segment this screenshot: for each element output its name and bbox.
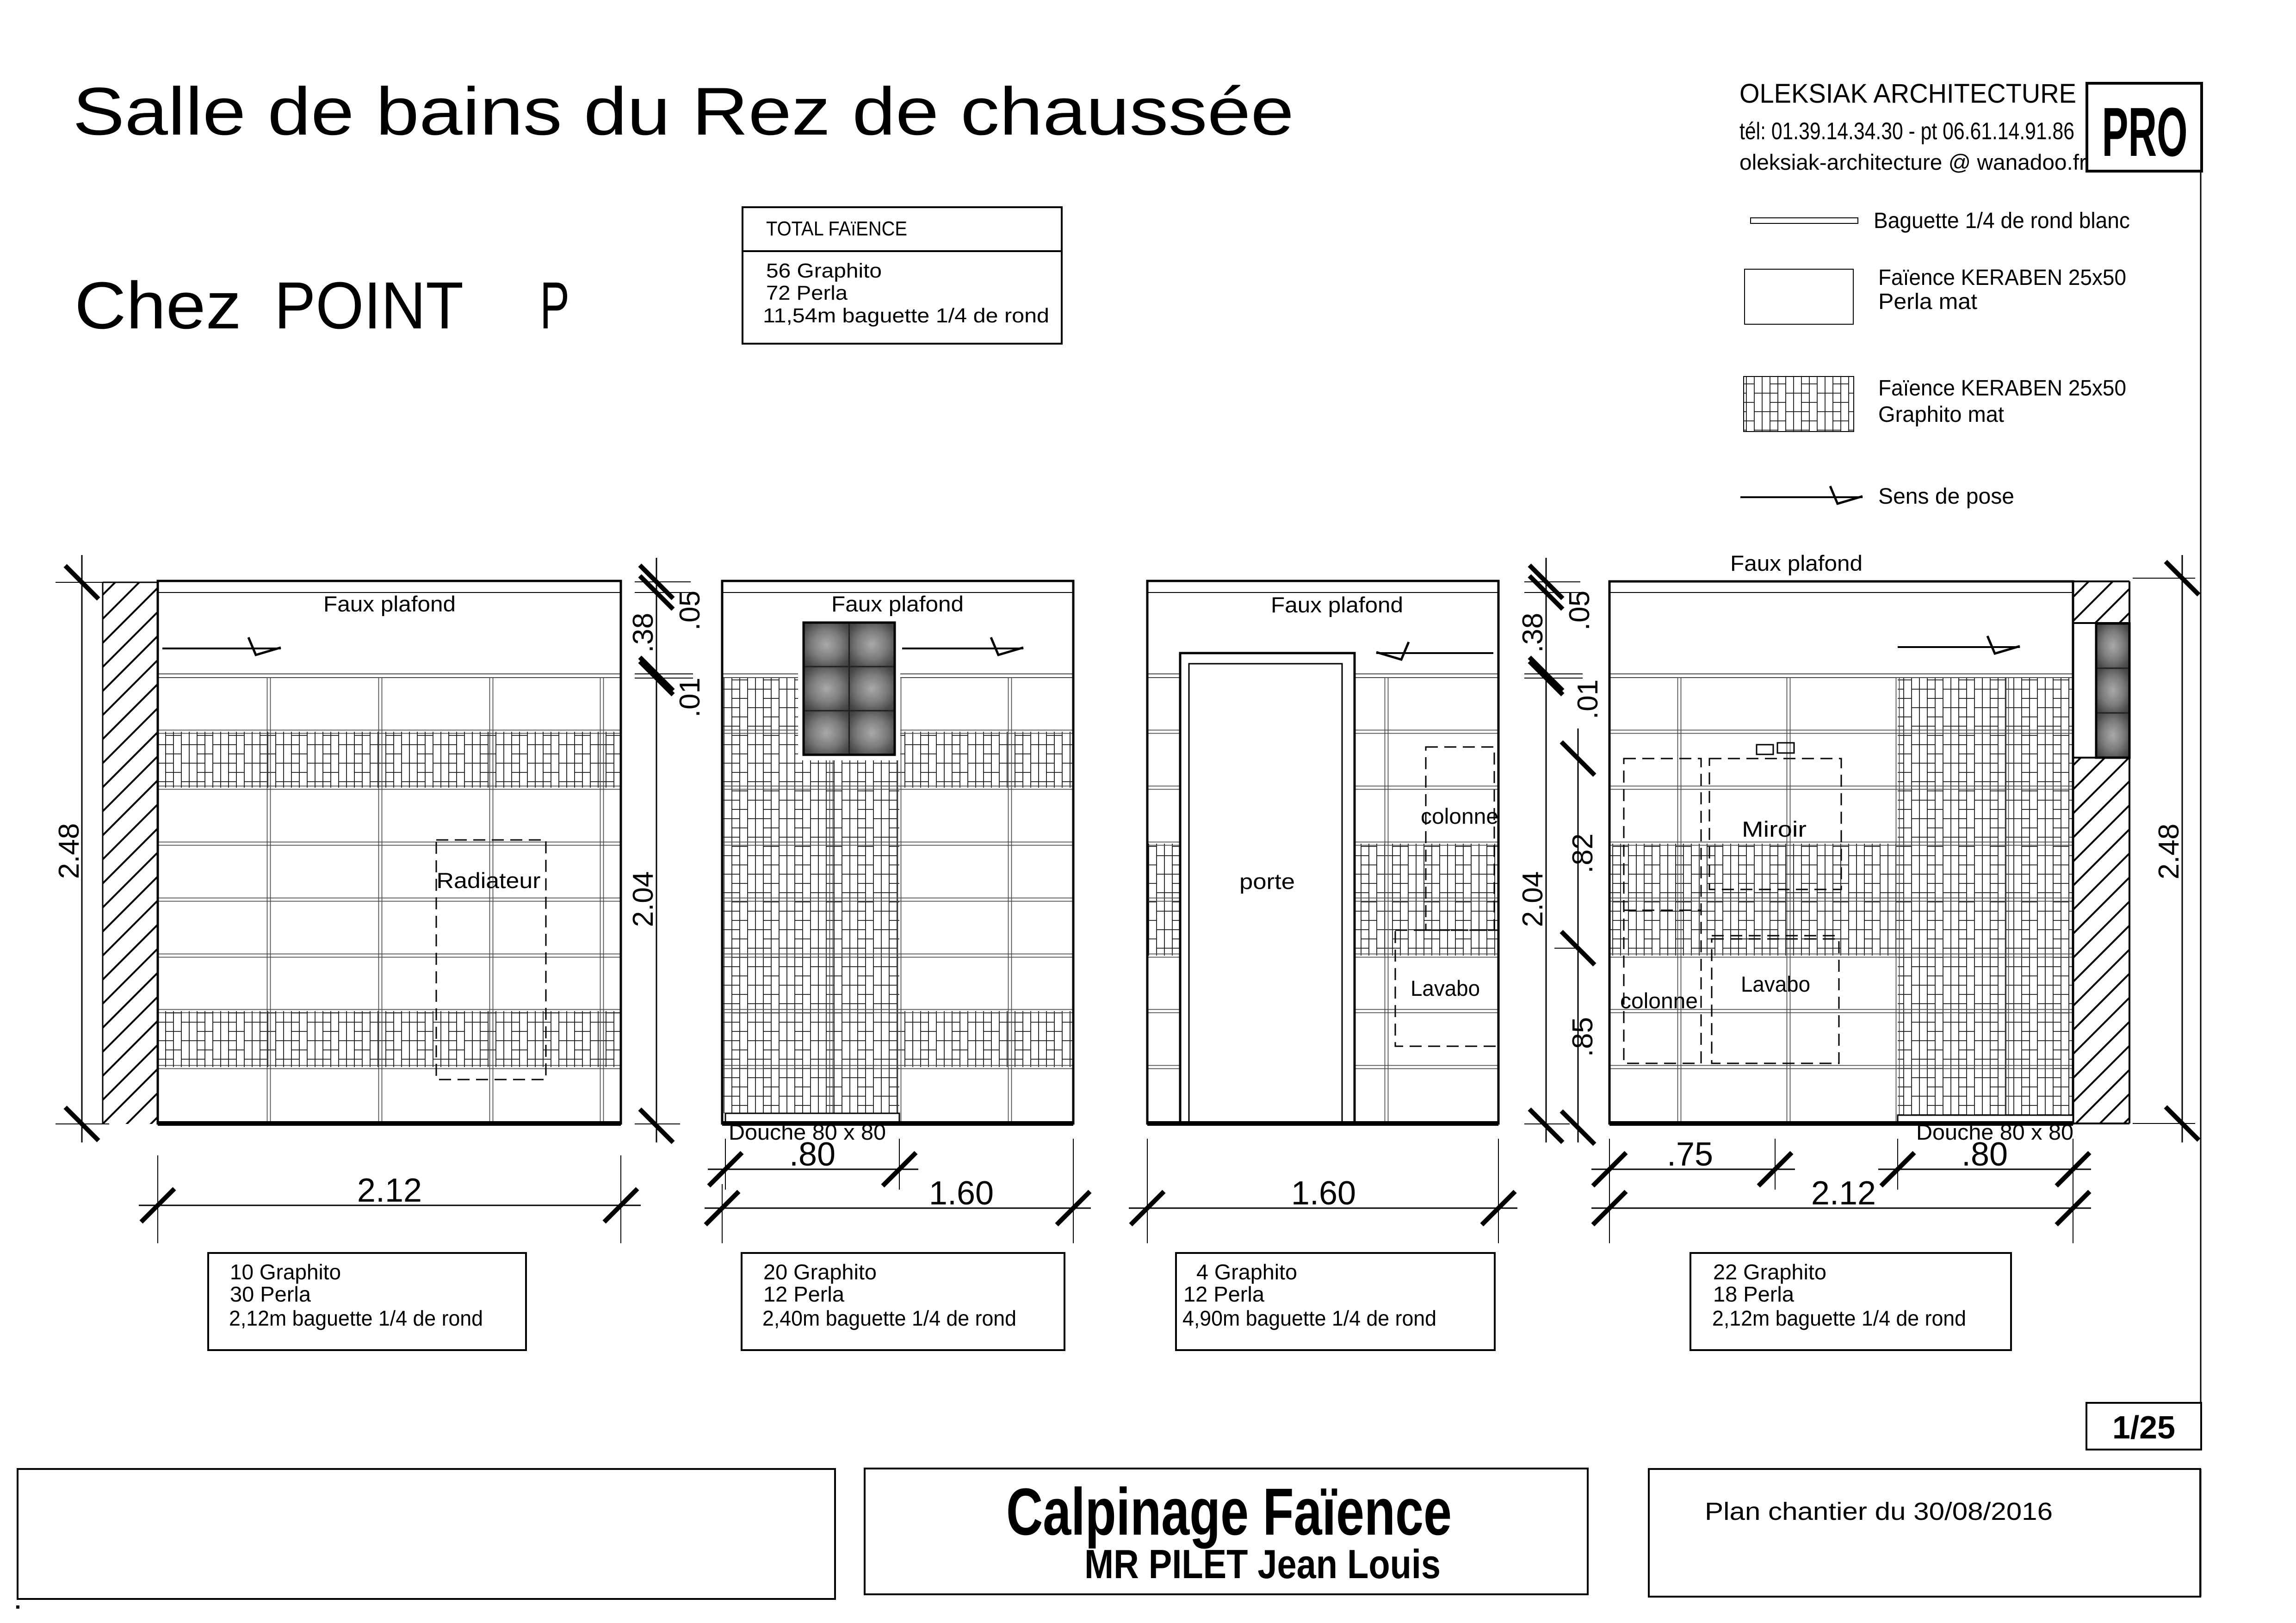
svg-text:1.60: 1.60 (929, 1175, 994, 1212)
svg-text:72 Perla: 72 Perla (766, 282, 848, 304)
svg-text:12 Perla: 12 Perla (763, 1282, 844, 1306)
svg-text:4,90m baguette 1/4 de rond: 4,90m baguette 1/4 de rond (1182, 1306, 1436, 1330)
svg-text:Sens de pose: Sens de pose (1878, 484, 2014, 509)
svg-text:.85: .85 (1567, 1017, 1599, 1057)
svg-text:20 Graphito: 20 Graphito (763, 1260, 877, 1284)
svg-text:Salle de bains du Rez de chaus: Salle de bains du Rez de chaussée (73, 74, 1294, 149)
svg-text:PRO: PRO (2102, 93, 2188, 171)
svg-text:MR PILET Jean Louis: MR PILET Jean Louis (1084, 1541, 1441, 1587)
svg-text:Baguette 1/4 de rond blanc: Baguette 1/4 de rond blanc (1874, 209, 2130, 233)
svg-text:colonne: colonne (1421, 804, 1498, 828)
svg-text:Perla mat: Perla mat (1878, 290, 1977, 314)
svg-text:Faux plafond: Faux plafond (323, 592, 456, 616)
svg-text:2.48: 2.48 (2153, 824, 2185, 880)
svg-text:.01: .01 (674, 678, 706, 717)
svg-text:Miroir: Miroir (1742, 817, 1807, 841)
svg-text:1/25: 1/25 (2112, 1409, 2175, 1445)
svg-text:OLEKSIAK ARCHITECTURE: OLEKSIAK ARCHITECTURE (1739, 79, 2076, 109)
svg-text:.05: .05 (674, 591, 706, 630)
svg-text:.05: .05 (1564, 591, 1596, 630)
svg-text:12 Perla: 12 Perla (1183, 1282, 1264, 1306)
svg-text:30 Perla: 30 Perla (230, 1282, 311, 1306)
svg-text:Lavabo: Lavabo (1411, 976, 1480, 1000)
svg-text:Chez: Chez (74, 268, 241, 343)
svg-text:.80: .80 (789, 1136, 835, 1173)
svg-text:2.04: 2.04 (1517, 871, 1549, 927)
svg-text:2.12: 2.12 (357, 1172, 422, 1209)
svg-text:Graphito mat: Graphito mat (1878, 402, 2004, 427)
svg-text:2,12m baguette 1/4 de rond: 2,12m baguette 1/4 de rond (229, 1306, 483, 1330)
svg-text:Faux plafond: Faux plafond (831, 592, 964, 616)
svg-text:colonne: colonne (1620, 988, 1698, 1013)
svg-text:1.60: 1.60 (1291, 1175, 1356, 1212)
svg-text:POINT: POINT (274, 268, 464, 343)
svg-text:Lavabo: Lavabo (1741, 972, 1810, 996)
svg-text:.75: .75 (1667, 1136, 1713, 1173)
svg-text:.80: .80 (1962, 1136, 2008, 1173)
svg-text:P: P (540, 268, 569, 343)
svg-text:11,54m baguette 1/4 de rond: 11,54m baguette 1/4 de rond (763, 304, 1049, 327)
svg-text:10 Graphito: 10 Graphito (230, 1260, 341, 1284)
svg-text:.82: .82 (1567, 833, 1599, 873)
svg-text:.01: .01 (1572, 679, 1604, 719)
svg-text:Faux plafond: Faux plafond (1730, 551, 1863, 575)
svg-text:4 Graphito: 4 Graphito (1196, 1260, 1297, 1284)
svg-text:56 Graphito: 56 Graphito (766, 259, 882, 282)
svg-text:2,40m baguette 1/4 de rond: 2,40m baguette 1/4 de rond (762, 1306, 1016, 1330)
svg-text:tél: 01.39.14.34.30 - pt 06.61: tél: 01.39.14.34.30 - pt 06.61.14.91.86 (1739, 118, 2074, 145)
svg-text:Faïence KERABEN 25x50: Faïence KERABEN 25x50 (1878, 376, 2126, 401)
svg-text:porte: porte (1239, 869, 1295, 894)
svg-text:oleksiak-architecture @ wanado: oleksiak-architecture @ wanadoo.fr (1739, 150, 2086, 174)
svg-text:2.12: 2.12 (1811, 1175, 1876, 1212)
svg-text:.38: .38 (627, 613, 659, 653)
svg-text:Plan chantier du 30/08/2016: Plan chantier du 30/08/2016 (1705, 1498, 2053, 1525)
svg-text:22 Graphito: 22 Graphito (1713, 1260, 1826, 1284)
svg-text:Faïence KERABEN 25x50: Faïence KERABEN 25x50 (1878, 265, 2126, 290)
svg-text:18 Perla: 18 Perla (1713, 1282, 1794, 1306)
svg-text:TOTAL FAïENCE: TOTAL FAïENCE (766, 217, 907, 240)
svg-text:Faux plafond: Faux plafond (1271, 592, 1403, 617)
svg-text:2.04: 2.04 (627, 871, 659, 927)
svg-text:2,12m baguette 1/4 de rond: 2,12m baguette 1/4 de rond (1712, 1306, 1966, 1330)
svg-text:Radiateur: Radiateur (437, 868, 541, 893)
svg-text:Calpinage Faïence: Calpinage Faïence (1006, 1475, 1452, 1549)
svg-text:.38: .38 (1517, 613, 1549, 653)
svg-text:2.48: 2.48 (53, 823, 85, 879)
